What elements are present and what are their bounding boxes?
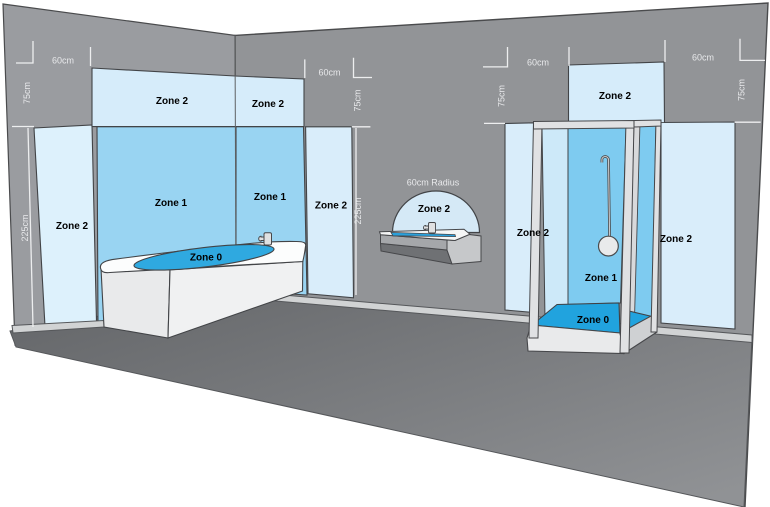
svg-text:60cm: 60cm xyxy=(52,56,74,66)
svg-text:Zone 2: Zone 2 xyxy=(56,221,89,232)
svg-text:Zone 2: Zone 2 xyxy=(156,96,189,107)
svg-text:Zone 0: Zone 0 xyxy=(190,253,223,264)
svg-text:60cm: 60cm xyxy=(692,53,714,63)
svg-text:Zone 2: Zone 2 xyxy=(315,201,348,212)
svg-text:Zone 2: Zone 2 xyxy=(418,204,451,215)
svg-text:225cm: 225cm xyxy=(353,197,363,224)
svg-text:60cm: 60cm xyxy=(527,58,549,68)
svg-text:75cm: 75cm xyxy=(737,79,747,101)
svg-text:Zone 2: Zone 2 xyxy=(660,234,693,245)
svg-text:Zone 1: Zone 1 xyxy=(585,273,618,284)
svg-text:Zone 0: Zone 0 xyxy=(577,315,610,326)
svg-text:60cm Radius: 60cm Radius xyxy=(407,178,460,188)
svg-text:75cm: 75cm xyxy=(353,89,363,111)
svg-text:Zone 2: Zone 2 xyxy=(599,91,632,102)
svg-text:60cm: 60cm xyxy=(318,68,340,78)
svg-text:75cm: 75cm xyxy=(497,85,507,107)
svg-text:Zone 2: Zone 2 xyxy=(517,228,550,239)
svg-text:75cm: 75cm xyxy=(22,82,32,104)
svg-text:225cm: 225cm xyxy=(20,214,30,241)
svg-text:Zone 1: Zone 1 xyxy=(155,198,188,209)
svg-text:Zone 2: Zone 2 xyxy=(252,99,285,110)
svg-text:Zone 1: Zone 1 xyxy=(254,192,287,203)
